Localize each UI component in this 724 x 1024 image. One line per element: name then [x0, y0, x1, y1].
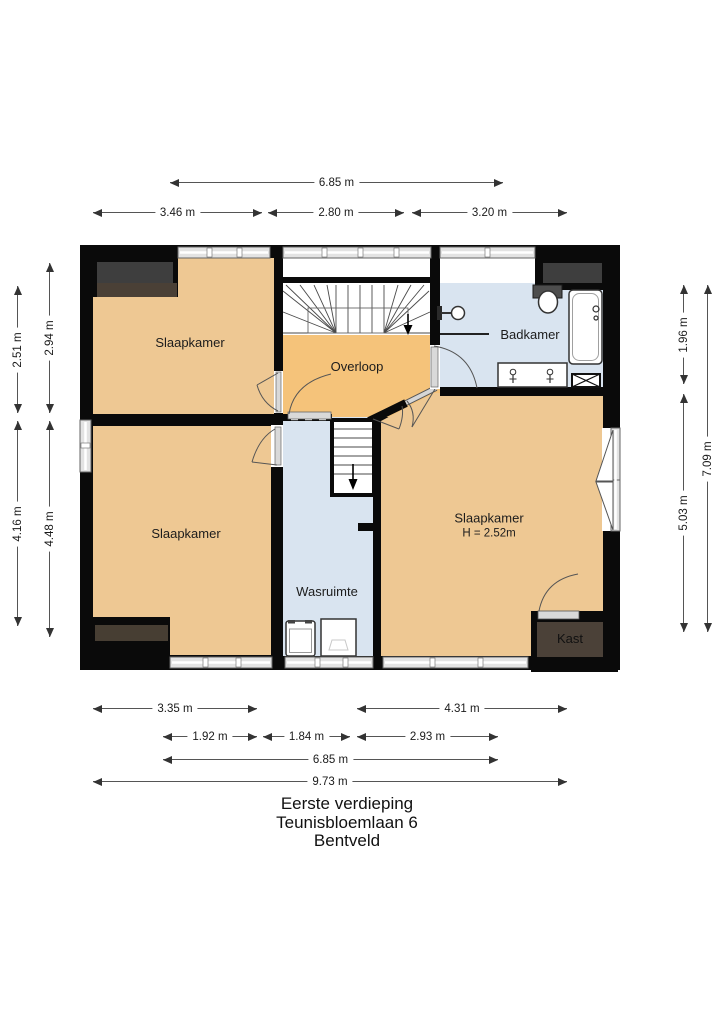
dim-bottom-r1-2: 4.31 m [357, 708, 567, 709]
window-bottom-left [170, 657, 272, 668]
plan-title-city: Bentveld [276, 832, 418, 851]
kast-door-leaf [538, 611, 579, 619]
dim-left-inner-1: 2.94 m [49, 263, 50, 413]
attic-staircase [332, 420, 374, 495]
dryer [321, 619, 356, 656]
window-bottom-center [285, 657, 373, 668]
toilet-bowl [539, 291, 558, 313]
window-left [80, 420, 91, 472]
label-kast: Kast [557, 632, 583, 647]
floorplan-page: Slaapkamer Overloop Badkamer Slaapkamer … [0, 0, 724, 1024]
washing-machine [286, 620, 315, 656]
badkamer-void [440, 257, 535, 283]
dim-left-outer-2: 4.16 m [17, 421, 18, 626]
dim-left-outer-1: 2.51 m [17, 286, 18, 413]
dim-top-total: 6.85 m [170, 182, 503, 183]
label-slaapkamer-r: Slaapkamer H = 2.52m [454, 512, 523, 541]
label-slaapkamer-bl: Slaapkamer [151, 527, 220, 542]
dim-bottom-r2-1: 1.92 m [163, 736, 257, 737]
dim-top-2: 2.80 m [268, 212, 404, 213]
label-overloop: Overloop [331, 360, 384, 375]
wasruimte-fixtures [286, 619, 356, 656]
label-slaapkamer-tl: Slaapkamer [155, 336, 224, 351]
dim-left-inner-2: 4.48 m [49, 421, 50, 637]
bathtub [569, 290, 602, 364]
plan-title-address: Teunisbloemlaan 6 [276, 814, 418, 833]
window-top-right [440, 247, 535, 258]
label-badkamer: Badkamer [500, 328, 559, 343]
window-bottom-right [383, 657, 528, 668]
dim-right-inner-1: 1.96 m [683, 285, 684, 384]
dim-bottom-r3: 6.85 m [163, 759, 498, 760]
dim-bottom-r4: 9.73 m [93, 781, 567, 782]
plan-title-floor: Eerste verdieping [276, 795, 418, 814]
dim-bottom-r1-1: 3.35 m [93, 708, 257, 709]
duct-shaft [572, 374, 600, 387]
dim-right-outer: 7.09 m [707, 285, 708, 632]
label-slaapkamer-r-name: Slaapkamer [454, 512, 523, 527]
dim-top-1: 3.46 m [93, 212, 262, 213]
double-sink [498, 363, 567, 387]
dim-top-3: 3.20 m [412, 212, 567, 213]
plan-title: Eerste verdieping Teunisbloemlaan 6 Bent… [276, 795, 418, 851]
floorplan-drawing [0, 0, 724, 1024]
window-top-left [178, 247, 270, 258]
window-top-center [283, 247, 431, 258]
label-slaapkamer-r-height: H = 2.52m [454, 526, 523, 541]
dim-bottom-r2-3: 2.93 m [357, 736, 498, 737]
dim-right-inner-2: 5.03 m [683, 394, 684, 632]
dim-bottom-r2-2: 1.84 m [263, 736, 350, 737]
label-wasruimte: Wasruimte [296, 585, 358, 600]
